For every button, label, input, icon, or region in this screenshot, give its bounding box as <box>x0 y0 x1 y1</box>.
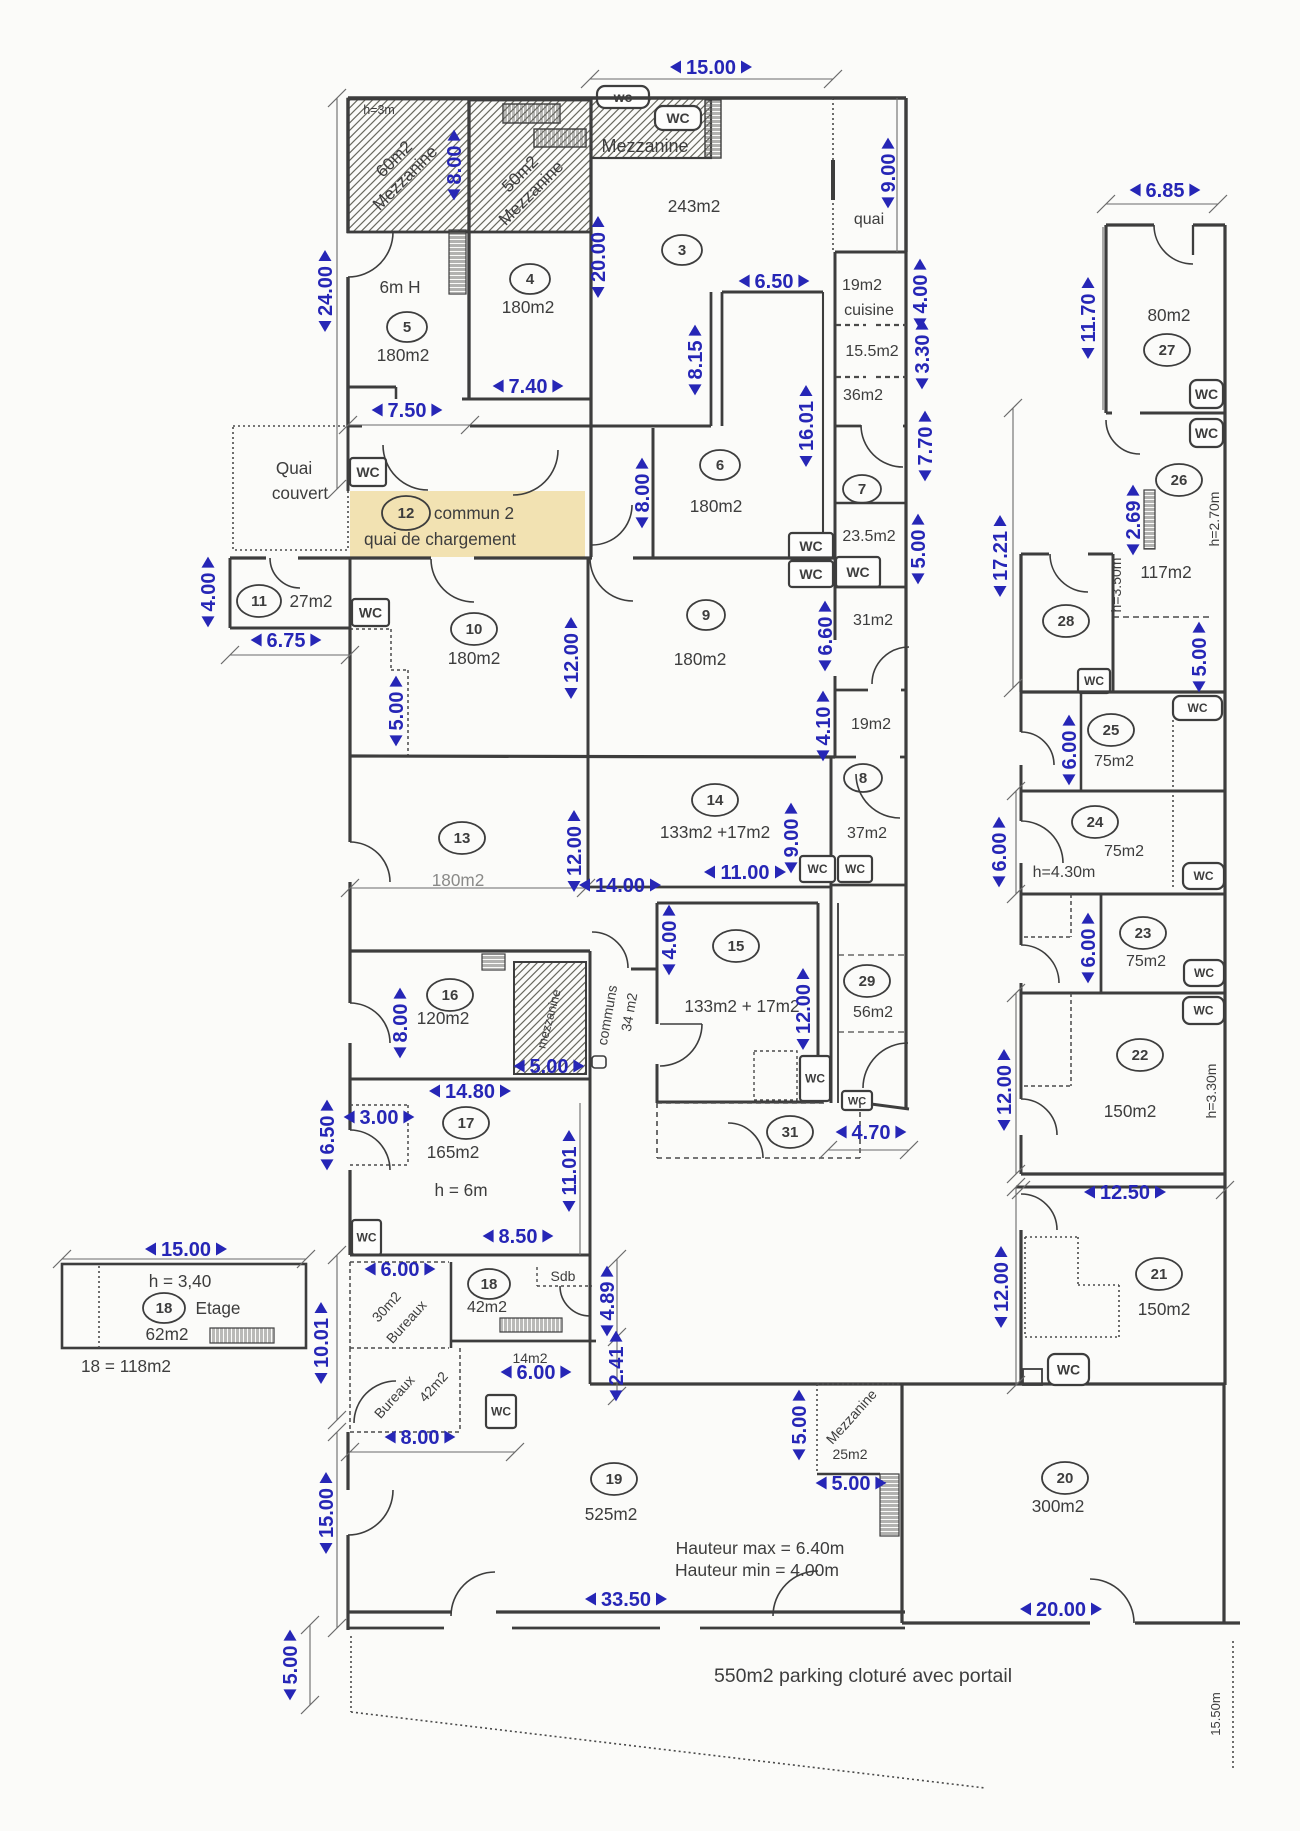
svg-text:h=3.50m: h=3.50m <box>1108 558 1124 613</box>
svg-text:WC: WC <box>491 1405 511 1419</box>
svg-text:6: 6 <box>716 457 724 474</box>
svg-text:5.00: 5.00 <box>530 1056 569 1078</box>
svg-text:12.00: 12.00 <box>561 633 583 683</box>
svg-text:Hauteur min = 4.00m: Hauteur min = 4.00m <box>675 1560 839 1580</box>
svg-text:6.85: 6.85 <box>1146 180 1185 202</box>
svg-text:11.00: 11.00 <box>721 862 770 884</box>
svg-text:WC: WC <box>359 604 382 620</box>
svg-text:commun 2: commun 2 <box>434 503 514 523</box>
svg-text:5.00: 5.00 <box>832 1473 871 1495</box>
svg-text:3.00: 3.00 <box>360 1107 399 1129</box>
svg-text:9: 9 <box>702 607 710 624</box>
svg-text:Mezzanine: Mezzanine <box>601 136 688 156</box>
svg-text:12.50: 12.50 <box>1100 1182 1150 1204</box>
svg-text:16.01: 16.01 <box>796 401 818 451</box>
svg-text:8.00: 8.00 <box>444 146 466 185</box>
svg-text:33.50: 33.50 <box>601 1589 651 1611</box>
svg-text:WC: WC <box>848 1095 866 1107</box>
svg-text:4.00: 4.00 <box>910 275 932 314</box>
svg-text:Etage: Etage <box>196 1298 241 1318</box>
svg-text:18: 18 <box>156 1300 173 1317</box>
svg-text:23: 23 <box>1135 925 1152 942</box>
svg-text:WC: WC <box>1188 701 1208 715</box>
svg-text:7.50: 7.50 <box>388 400 427 422</box>
svg-text:couvert: couvert <box>272 483 329 503</box>
svg-text:150m2: 150m2 <box>1104 1101 1157 1121</box>
svg-text:11: 11 <box>251 593 267 610</box>
svg-text:11.70: 11.70 <box>1078 294 1100 343</box>
svg-text:h = 3,40: h = 3,40 <box>149 1271 212 1291</box>
svg-text:Hauteur max = 6.40m: Hauteur max = 6.40m <box>676 1538 845 1558</box>
svg-text:36m2: 36m2 <box>843 387 883 404</box>
svg-text:120m2: 120m2 <box>417 1008 470 1028</box>
svg-text:WC: WC <box>1195 425 1218 441</box>
svg-text:quai de chargement: quai de chargement <box>364 529 516 549</box>
svg-text:WC: WC <box>1194 1004 1214 1018</box>
svg-text:17: 17 <box>458 1115 475 1132</box>
svg-text:8.00: 8.00 <box>632 474 654 513</box>
svg-text:16: 16 <box>442 987 459 1004</box>
svg-text:21: 21 <box>1151 1266 1168 1283</box>
svg-text:WC: WC <box>1084 674 1104 688</box>
svg-text:13: 13 <box>454 830 471 847</box>
svg-text:180m2: 180m2 <box>690 496 743 516</box>
svg-text:6.00: 6.00 <box>517 1362 556 1384</box>
svg-text:75m2: 75m2 <box>1094 753 1134 770</box>
svg-text:6m H: 6m H <box>379 277 420 297</box>
svg-text:75m2: 75m2 <box>1104 843 1144 860</box>
svg-text:11.01: 11.01 <box>559 1147 581 1196</box>
svg-text:6.50: 6.50 <box>317 1116 339 1155</box>
svg-text:WC: WC <box>1194 966 1214 980</box>
svg-text:12.00: 12.00 <box>793 984 815 1034</box>
svg-text:12: 12 <box>398 505 415 522</box>
svg-text:18: 18 <box>481 1276 498 1293</box>
svg-text:180m2: 180m2 <box>448 648 501 668</box>
svg-text:180m2: 180m2 <box>674 649 727 669</box>
svg-text:300m2: 300m2 <box>1032 1496 1085 1516</box>
svg-text:27: 27 <box>1159 342 1176 359</box>
svg-text:10: 10 <box>466 621 483 638</box>
svg-text:243m2: 243m2 <box>668 196 721 216</box>
svg-text:WC: WC <box>805 1072 825 1086</box>
svg-text:80m2: 80m2 <box>1148 305 1191 325</box>
svg-text:quai: quai <box>854 211 884 228</box>
svg-text:WC: WC <box>799 538 822 554</box>
svg-text:6.00: 6.00 <box>381 1259 420 1281</box>
svg-text:550m2 parking cloturé avec por: 550m2 parking cloturé avec portail <box>714 1665 1012 1687</box>
svg-text:150m2: 150m2 <box>1138 1299 1191 1319</box>
svg-text:75m2: 75m2 <box>1126 953 1166 970</box>
svg-text:cuisine: cuisine <box>844 302 894 319</box>
svg-text:180m2: 180m2 <box>432 870 485 890</box>
svg-text:19: 19 <box>606 1471 623 1488</box>
svg-text:14.00: 14.00 <box>595 875 645 897</box>
svg-text:h=3.30m: h=3.30m <box>1203 1064 1219 1119</box>
svg-text:42m2: 42m2 <box>467 1299 507 1316</box>
svg-text:26: 26 <box>1171 472 1188 489</box>
svg-text:25m2: 25m2 <box>832 1446 867 1462</box>
svg-text:14: 14 <box>707 792 724 809</box>
svg-text:4.00: 4.00 <box>659 921 681 960</box>
svg-text:37m2: 37m2 <box>847 825 887 842</box>
svg-text:15: 15 <box>728 938 745 955</box>
svg-text:165m2: 165m2 <box>427 1142 480 1162</box>
svg-text:3.30: 3.30 <box>912 335 934 374</box>
svg-text:31m2: 31m2 <box>853 612 893 629</box>
svg-text:12.00: 12.00 <box>991 1262 1013 1312</box>
svg-text:117m2: 117m2 <box>1140 562 1191 582</box>
svg-text:8.15: 8.15 <box>685 341 707 380</box>
svg-text:180m2: 180m2 <box>377 345 430 365</box>
svg-text:9.00: 9.00 <box>781 819 803 858</box>
svg-text:8.00: 8.00 <box>390 1004 412 1043</box>
svg-text:WC: WC <box>356 464 379 480</box>
svg-text:133m2 +17m2: 133m2 +17m2 <box>660 822 770 842</box>
svg-text:20.00: 20.00 <box>588 232 610 282</box>
svg-text:WC: WC <box>845 862 865 876</box>
svg-text:133m2 + 17m2: 133m2 + 17m2 <box>684 996 799 1016</box>
svg-text:WC: WC <box>846 564 869 580</box>
svg-text:h=2.70m: h=2.70m <box>1206 492 1222 547</box>
svg-text:56m2: 56m2 <box>853 1004 893 1021</box>
svg-text:14.80: 14.80 <box>445 1081 495 1103</box>
svg-text:WC: WC <box>666 110 689 126</box>
svg-text:WC: WC <box>808 862 828 876</box>
svg-text:6.00: 6.00 <box>1059 731 1081 770</box>
svg-text:WC: WC <box>1194 869 1214 883</box>
svg-text:29: 29 <box>859 973 876 990</box>
svg-text:WC: WC <box>799 566 822 582</box>
svg-text:5.00: 5.00 <box>280 1646 302 1685</box>
svg-text:WC: WC <box>1195 386 1218 402</box>
svg-text:h=4.30m: h=4.30m <box>1033 864 1096 881</box>
svg-text:h = 6m: h = 6m <box>434 1180 487 1200</box>
svg-text:6.60: 6.60 <box>815 617 837 656</box>
svg-text:22: 22 <box>1132 1047 1149 1064</box>
svg-text:6.50: 6.50 <box>755 271 794 293</box>
svg-text:24.00: 24.00 <box>315 266 337 316</box>
svg-text:17.21: 17.21 <box>990 531 1012 581</box>
svg-text:18 = 118m2: 18 = 118m2 <box>81 1356 171 1376</box>
svg-text:9.00: 9.00 <box>878 154 900 193</box>
svg-text:12.00: 12.00 <box>994 1065 1016 1115</box>
svg-text:15.5m2: 15.5m2 <box>845 343 898 360</box>
svg-text:5.00: 5.00 <box>789 1406 811 1445</box>
svg-text:19m2: 19m2 <box>842 277 882 294</box>
svg-text:5: 5 <box>403 319 411 336</box>
svg-text:15.00: 15.00 <box>316 1488 338 1538</box>
svg-text:19m2: 19m2 <box>851 716 891 733</box>
svg-text:h=3m: h=3m <box>363 103 395 117</box>
svg-text:5.00: 5.00 <box>908 530 930 569</box>
svg-text:8.50: 8.50 <box>499 1226 538 1248</box>
svg-text:WC: WC <box>357 1231 377 1245</box>
svg-text:28: 28 <box>1058 613 1075 630</box>
svg-text:15.00: 15.00 <box>686 57 736 79</box>
svg-text:Quai: Quai <box>276 458 312 478</box>
svg-text:525m2: 525m2 <box>585 1504 638 1524</box>
svg-text:WC: WC <box>1057 1361 1080 1377</box>
svg-text:25: 25 <box>1103 722 1120 739</box>
svg-text:4.70: 4.70 <box>852 1122 891 1144</box>
svg-text:23.5m2: 23.5m2 <box>842 528 895 545</box>
svg-text:180m2: 180m2 <box>502 297 555 317</box>
svg-text:15.50m: 15.50m <box>1208 1692 1223 1735</box>
svg-text:20.00: 20.00 <box>1036 1599 1086 1621</box>
svg-text:7.40: 7.40 <box>509 376 548 398</box>
svg-text:5.00: 5.00 <box>386 692 408 731</box>
svg-text:15.00: 15.00 <box>161 1239 211 1261</box>
svg-text:4.10: 4.10 <box>813 707 835 746</box>
svg-text:27m2: 27m2 <box>290 591 333 611</box>
svg-text:Sdb: Sdb <box>551 1268 576 1284</box>
svg-text:12.00: 12.00 <box>564 826 586 876</box>
svg-text:2.69: 2.69 <box>1123 501 1145 540</box>
svg-text:4.89: 4.89 <box>597 1282 619 1321</box>
svg-text:10.01: 10.01 <box>311 1318 333 1368</box>
svg-text:4: 4 <box>526 271 535 288</box>
svg-text:3: 3 <box>678 242 686 259</box>
svg-text:4.00: 4.00 <box>198 573 220 612</box>
svg-text:7: 7 <box>858 481 866 498</box>
svg-text:6.75: 6.75 <box>267 630 306 652</box>
svg-text:7.70: 7.70 <box>915 427 937 466</box>
svg-text:5.00: 5.00 <box>1189 638 1211 677</box>
svg-text:31: 31 <box>782 1124 799 1141</box>
svg-text:2.41: 2.41 <box>606 1347 628 1386</box>
svg-text:24: 24 <box>1087 814 1104 831</box>
svg-text:8: 8 <box>859 770 867 787</box>
svg-text:6.00: 6.00 <box>989 833 1011 872</box>
svg-text:20: 20 <box>1057 1470 1074 1487</box>
svg-text:6.00: 6.00 <box>1078 929 1100 968</box>
svg-text:62m2: 62m2 <box>146 1324 189 1344</box>
svg-text:8.00: 8.00 <box>401 1427 440 1449</box>
